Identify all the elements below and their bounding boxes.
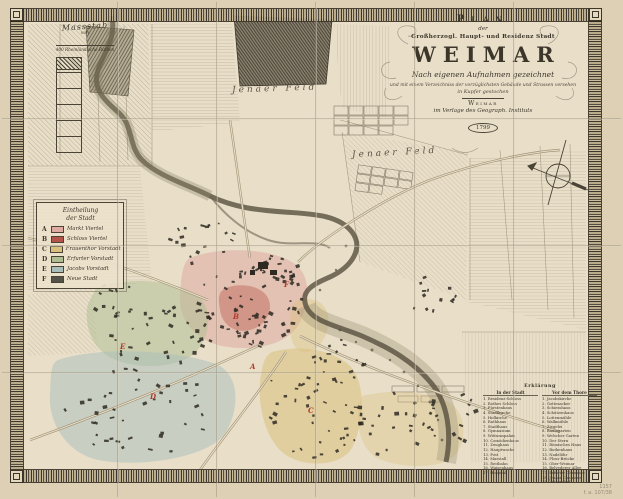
map-title-der: der: [388, 26, 578, 32]
margin-note-line2: f. a. 107/38: [552, 490, 612, 496]
legend-title-line1: Eintheilung: [42, 207, 119, 215]
map-title-line3: in Kupfer gestochen: [388, 89, 578, 95]
legend-swatch-green: [51, 256, 64, 263]
legend-letter: E: [42, 266, 48, 273]
district-legend: Eintheilung der Stadt A Markt Viertel B …: [36, 202, 124, 289]
legend-swatch-dark: [51, 276, 64, 283]
legend-swatch-yellow: [50, 246, 63, 253]
district-letter: E: [120, 342, 125, 351]
map-title-plan: Plan: [388, 14, 578, 25]
explanation-title: Erklärung: [483, 383, 597, 389]
legend-letter: F: [42, 276, 48, 283]
title-cartouche: Plan der Großherzogl. Haupt- und Residen…: [388, 14, 578, 133]
district-letter: F: [284, 280, 289, 289]
legend-row: D Erfurter Vorstadt: [42, 256, 119, 263]
explanation-col1-header: In der Stadt: [483, 390, 538, 396]
legend-row: B Schloss Viertel: [42, 236, 119, 243]
explanation-col-outside: Vor dem Thore 1. Jacobskirche2. Gottesac…: [542, 390, 597, 485]
border-corner-square: [10, 470, 23, 483]
legend-title-line2: der Stadt: [42, 215, 119, 223]
explanation-col2-header: Vor dem Thore: [542, 390, 597, 396]
legend-letter: A: [42, 226, 48, 233]
map-sheet: Plan der Großherzogl. Haupt- und Residen…: [0, 0, 623, 499]
legend-letter: D: [42, 256, 48, 263]
border-band-left: [10, 8, 24, 483]
legend-label: Erfurter Vorstadt: [67, 256, 113, 262]
legend-row: A Markt Viertel: [42, 226, 119, 233]
explanation-key: Erklärung In der Stadt 1. Residenz-Schlo…: [483, 383, 597, 485]
legend-swatch-red: [51, 236, 64, 243]
webicht-forest: [234, 16, 332, 86]
district-letter: A: [250, 362, 255, 371]
legend-letter: B: [42, 236, 48, 243]
legend-label: Markt Viertel: [67, 226, 103, 232]
district-letter: B: [233, 312, 239, 321]
scale-header: Massstab von 400 Rheinländische Ruthen: [40, 22, 130, 55]
map-title-line1: Nach eigenen Aufnahmen gezeichnet: [388, 70, 578, 79]
district-letter: D: [150, 392, 156, 401]
map-imprint-place: Weimar: [388, 100, 578, 107]
legend-row: E Jacobs Vorstadt: [42, 266, 119, 273]
border-corner-square: [10, 8, 23, 21]
border-corner-square: [589, 8, 602, 21]
map-title-city: WEIMAR: [395, 42, 578, 67]
margin-pencil-note: 1157 f. a. 107/38: [552, 484, 612, 496]
legend-swatch-pink: [51, 226, 64, 233]
map-title-line2: und mit einem Verzeichniss der vorzüglic…: [388, 83, 578, 88]
map-imprint-year: 1799: [468, 123, 498, 133]
map-title-subtitle: Großherzogl. Haupt- und Residenz Stadt: [388, 34, 578, 40]
legend-swatch-blue: [51, 266, 64, 273]
explanation-col1-list: 1. Residenz-Schloss2. Rothes Schloss3. F…: [483, 397, 538, 476]
legend-label: Schloss Viertel: [67, 236, 107, 242]
legend-label: Jacobs Vorstadt: [67, 266, 109, 272]
legend-label: Neue Stadt: [67, 276, 97, 282]
scale-unit: 400 Rheinländische Ruthen: [56, 45, 115, 52]
scale-bar: [56, 57, 82, 153]
district-letter: C: [308, 406, 314, 415]
legend-label: Frauenthor Vorstadt: [66, 246, 121, 252]
legend-row: F Neue Stadt: [42, 276, 119, 283]
explanation-item: 17. Hospital: [483, 471, 538, 476]
legend-row: C Frauenthor Vorstadt: [42, 246, 119, 253]
explanation-col2-list: 1. Jacobskirche2. Gottesacker3. Schiessh…: [542, 397, 597, 485]
explanation-col-city: In der Stadt 1. Residenz-Schloss2. Rothe…: [483, 390, 538, 485]
legend-letter: C: [42, 246, 47, 253]
cartouche-rule: [462, 98, 504, 99]
